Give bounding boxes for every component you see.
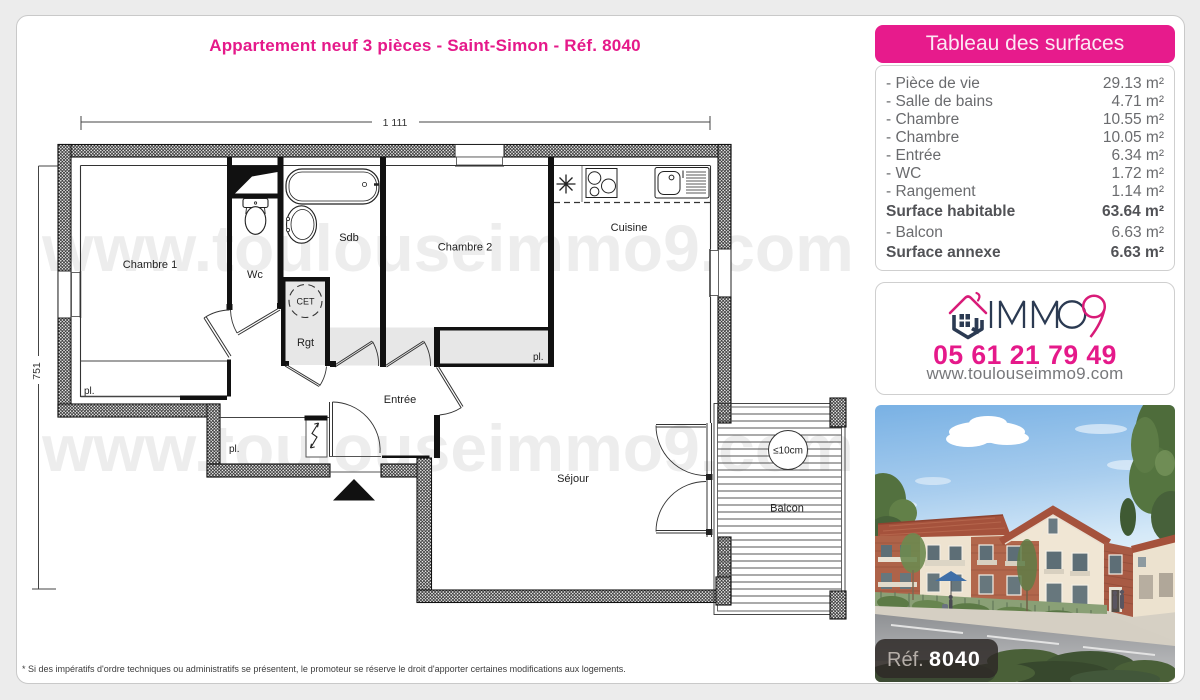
svg-text:Cuisine: Cuisine: [611, 222, 648, 234]
svg-text:Chambre 2: Chambre 2: [438, 242, 492, 254]
svg-text:Sdb: Sdb: [339, 232, 359, 244]
svg-text:Rgt: Rgt: [297, 337, 314, 349]
svg-text:1 111: 1 111: [383, 117, 408, 129]
svg-text:Chambre 1: Chambre 1: [123, 259, 177, 271]
svg-text:Balcon: Balcon: [770, 503, 804, 515]
svg-text:CET: CET: [297, 297, 316, 307]
svg-text:Séjour: Séjour: [557, 473, 589, 485]
svg-text:Entrée: Entrée: [384, 394, 416, 406]
svg-text:pl.: pl.: [84, 386, 95, 397]
svg-text:Réf.: Réf.: [887, 649, 924, 671]
svg-text:≤10cm: ≤10cm: [773, 446, 803, 457]
svg-text:pl.: pl.: [533, 352, 544, 363]
svg-text:pl.: pl.: [229, 444, 240, 455]
svg-text:8040: 8040: [929, 647, 981, 671]
svg-text:Wc: Wc: [247, 269, 263, 281]
svg-text:751: 751: [31, 362, 43, 380]
svg-text:www.toulouseimmo9.com: www.toulouseimmo9.com: [41, 411, 854, 485]
